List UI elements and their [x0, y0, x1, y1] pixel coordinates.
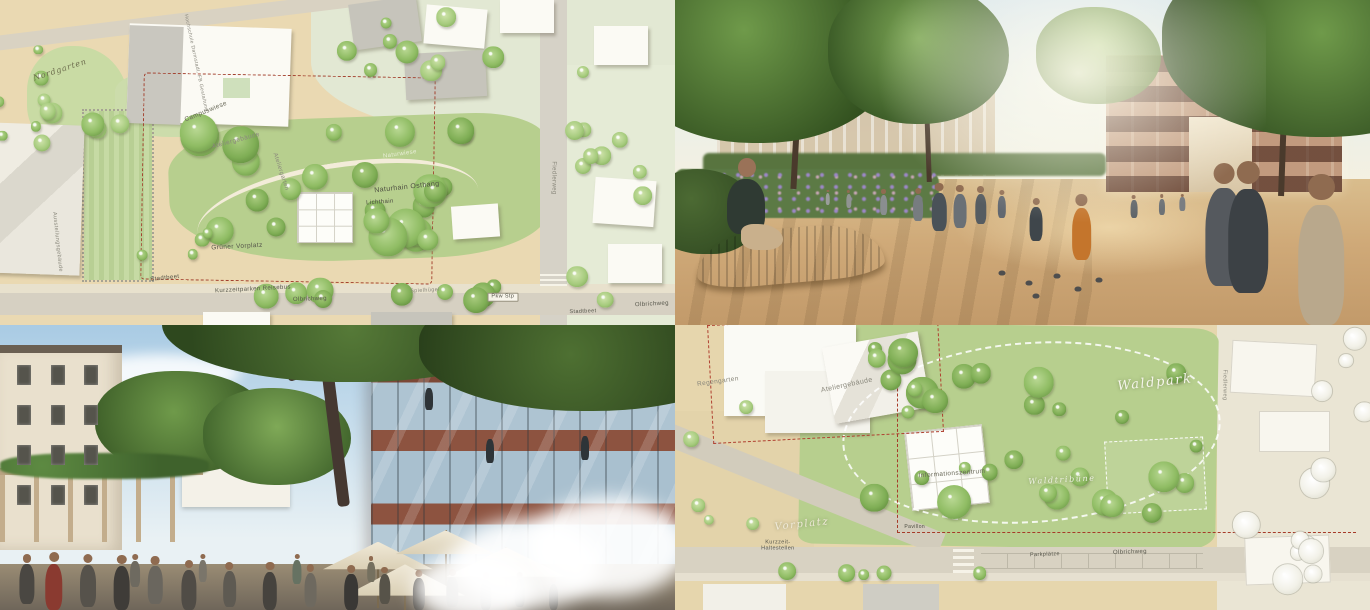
site-plan-nordgarten-panel: NordgartenHochschule Darmstadt, FB Gesta…	[0, 0, 675, 325]
label-stadtbeet-east: Stadtbeet	[570, 308, 597, 316]
brick-building-rendering-panel	[0, 325, 675, 610]
label-waldtribuene: Waldtribüne	[1028, 473, 1096, 486]
collage: NordgartenHochschule Darmstadt, FB Gesta…	[0, 0, 1370, 610]
label-fiedlerweg: Fiedlerweg	[1221, 369, 1228, 400]
label-regengarten: Regengarten	[697, 375, 740, 389]
label-ateliergarten: Ateliergarten	[271, 152, 290, 192]
label-olbrichweg: Olbrichweg	[293, 296, 327, 304]
label-ateliergebaeude: Ateliergebäude	[211, 131, 261, 151]
label-kurzzeit-haltestellen: Kurzzeit- Haltestellen	[761, 539, 795, 552]
label-olbrichweg-east: Olbrichweg	[635, 300, 669, 309]
plaza-rendering-panel	[675, 0, 1370, 325]
label-pavillon: Pavillon	[904, 524, 925, 530]
plan-labels-layer: NordgartenHochschule Darmstadt, FB Gesta…	[0, 0, 675, 325]
label-waldpark: Waldpark	[1116, 371, 1193, 394]
label-vorplatz: Vorplatz	[774, 516, 830, 534]
label-kurzzeitparken: Kurzzeitparken Reisebus	[215, 284, 291, 295]
label-naturhain-osthang: Naturhain Osthang	[374, 180, 440, 195]
label-spielhuegel: Spielhügel	[410, 287, 440, 295]
waldpark-plan-panel: RegengartenAteliergebäudeWaldparkInforma…	[675, 325, 1370, 610]
label-gruener-vorplatz: Grüner Vorplatz	[211, 242, 263, 252]
labels-layer	[675, 0, 1370, 325]
label-fiedlerweg: Fiedlerweg	[549, 161, 556, 194]
label-ausstellungsgebaeude: Ausstellungsgebäude	[50, 212, 63, 273]
labels-layer	[0, 325, 675, 610]
label-ateliergebaeude: Ateliergebäude	[821, 377, 874, 396]
plan-labels-layer: RegengartenAteliergebäudeWaldparkInforma…	[675, 325, 1370, 610]
label-nordgarten: Nordgarten	[32, 57, 88, 83]
label-stadtbeet: Stadtbeet	[150, 274, 180, 284]
label-olbrichweg: Olbrichweg	[1113, 549, 1147, 557]
label-parkplaetze: Parkplätze	[1030, 551, 1060, 559]
label-hochschule-darmstadt: Hochschule Darmstadt, FB Gestaltung	[182, 14, 209, 112]
label-informationszentrum: Informationszentrum	[919, 468, 986, 480]
label-lichthain: Lichthain	[366, 199, 394, 208]
label-naturwiese: Naturwiese	[383, 149, 418, 161]
label-pkw-stp: Pkw Stp	[487, 293, 518, 302]
